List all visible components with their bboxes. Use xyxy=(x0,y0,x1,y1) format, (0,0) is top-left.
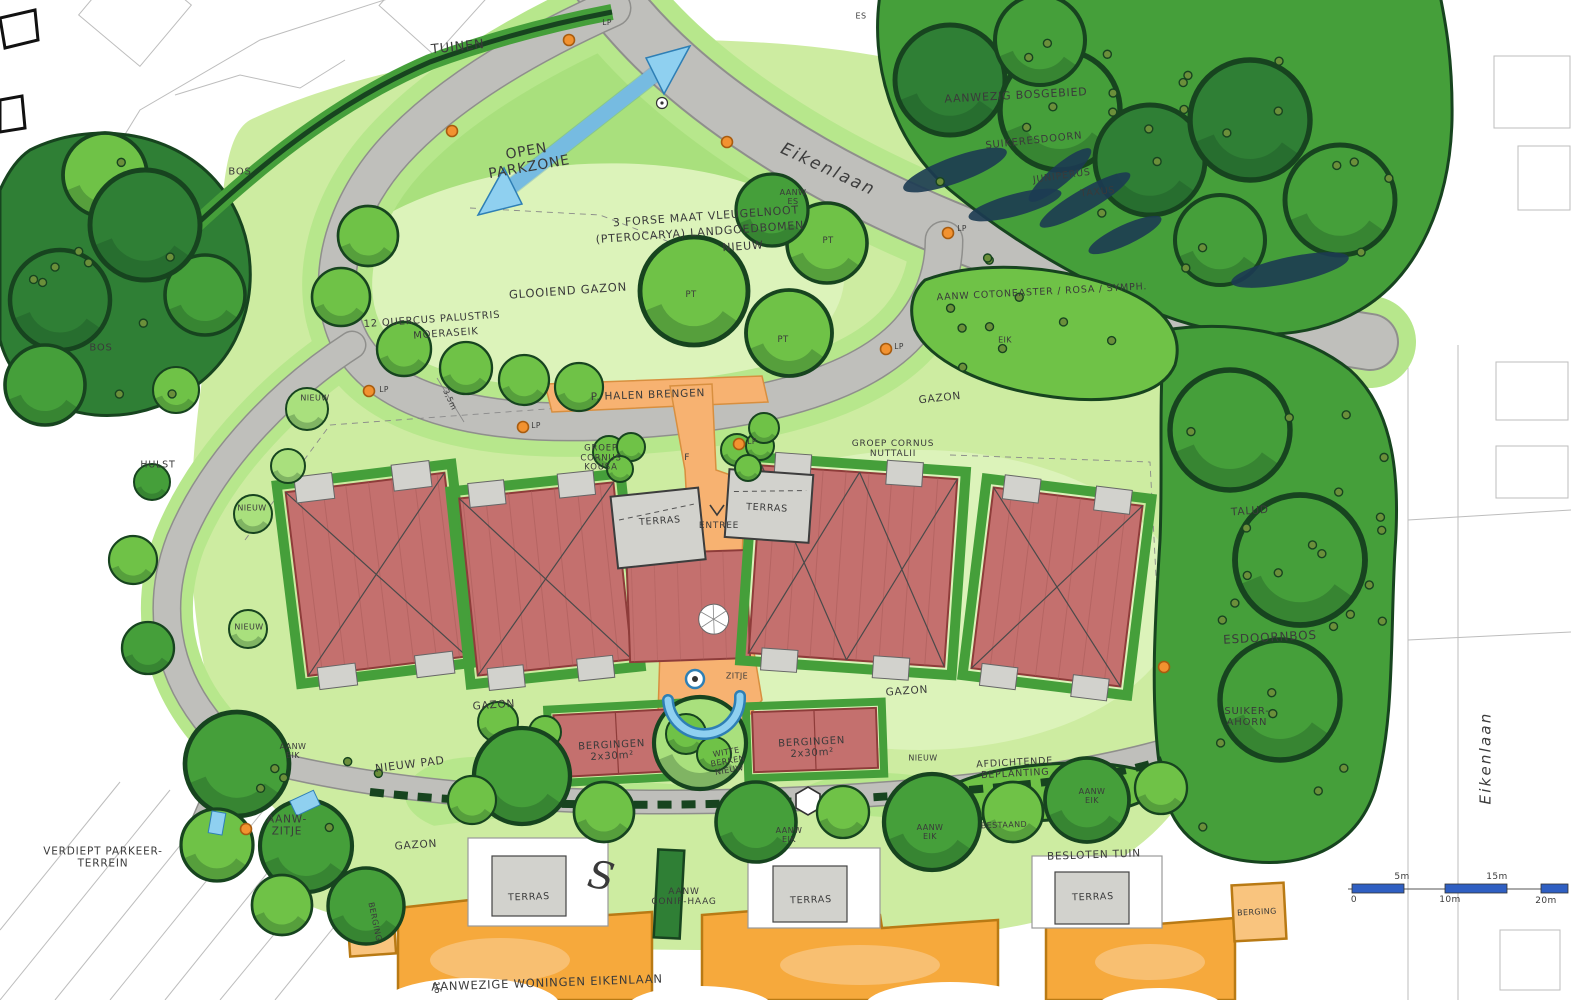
trunk-dot xyxy=(1184,71,1192,79)
wing-middle xyxy=(626,550,750,662)
trunk-dot xyxy=(1380,453,1388,461)
trunk-dot xyxy=(1376,513,1384,521)
trunk-dot xyxy=(168,390,176,398)
trunk-dot xyxy=(1109,108,1117,116)
conif-haag xyxy=(654,849,685,938)
trunk-dot xyxy=(1335,488,1343,496)
trunk-dot xyxy=(1103,50,1111,58)
trunk-dot xyxy=(1308,541,1316,549)
lamp-post xyxy=(447,126,458,137)
trunk-dot xyxy=(39,278,47,286)
lamp-post xyxy=(364,386,375,397)
trunk-dot xyxy=(1269,710,1277,718)
plan-drawing xyxy=(0,0,1571,1000)
trunk-dot xyxy=(1217,739,1225,747)
trunk-dot xyxy=(1350,158,1358,166)
trunk-dot xyxy=(257,784,265,792)
trunk-dot xyxy=(1333,161,1341,169)
lamp-post xyxy=(564,35,575,46)
trunk-dot xyxy=(1098,209,1106,217)
trunk-dot xyxy=(1108,337,1116,345)
trunk-dot xyxy=(1274,569,1282,577)
trunk-dot xyxy=(1043,39,1051,47)
trunk-dot xyxy=(936,178,944,186)
trunk-dot xyxy=(1357,248,1365,256)
trunk-dot xyxy=(1274,107,1282,115)
trunk-dot xyxy=(1346,610,1354,618)
survey-point-dot xyxy=(660,101,663,104)
scale-bar xyxy=(1348,884,1568,893)
berging-right xyxy=(1232,883,1287,942)
trunk-dot xyxy=(1365,581,1373,589)
trunk-dot xyxy=(280,774,288,782)
tree xyxy=(131,461,172,502)
trunk-dot xyxy=(1182,264,1190,272)
trunk-dot xyxy=(1023,123,1031,131)
black-building-corners xyxy=(0,10,38,132)
trunk-dot xyxy=(984,254,992,262)
trunk-dot xyxy=(75,247,83,255)
lamp-post xyxy=(943,228,954,239)
trunk-dot xyxy=(117,158,125,166)
trunk-dot xyxy=(30,275,38,283)
trunk-dot xyxy=(166,253,174,261)
trunk-dot xyxy=(1218,616,1226,624)
trunk-dot xyxy=(1318,550,1326,558)
trunk-dot xyxy=(1342,411,1350,419)
trunk-dot xyxy=(1242,524,1250,532)
trunk-dot xyxy=(1340,764,1348,772)
trunk-dot xyxy=(1179,79,1187,87)
site-plan-canvas: TUINENOPEN PARKZONEEikenlaanEikenlaanAAN… xyxy=(0,0,1571,1000)
trunk-dot xyxy=(1378,526,1386,534)
trunk-dot xyxy=(1243,571,1251,579)
lamp-post xyxy=(734,439,745,450)
lamp-post xyxy=(241,824,252,835)
trunk-dot xyxy=(1153,158,1161,166)
trunk-dot xyxy=(1109,89,1117,97)
trunk-dot xyxy=(1385,174,1393,182)
trunk-dot xyxy=(1145,125,1153,133)
trunk-dot xyxy=(947,304,955,312)
trunk-dot xyxy=(1187,428,1195,436)
lamp-post xyxy=(722,137,733,148)
trunk-dot xyxy=(1059,318,1067,326)
trunk-dot xyxy=(325,823,333,831)
trunk-dot xyxy=(986,323,994,331)
trunk-dot xyxy=(139,319,147,327)
trunk-dot xyxy=(1049,103,1057,111)
trunk-dot xyxy=(1180,105,1188,113)
trunk-dot xyxy=(85,259,93,267)
trunk-dot xyxy=(1314,787,1322,795)
trunk-dot xyxy=(271,765,279,773)
lamp-post xyxy=(1159,662,1170,673)
trunk-dot xyxy=(1015,293,1023,301)
trunk-dot xyxy=(1285,414,1293,422)
trunk-dot xyxy=(374,769,382,777)
trunk-dot xyxy=(115,390,123,398)
trunk-dot xyxy=(344,758,352,766)
trunk-dot xyxy=(1275,57,1283,65)
trunk-dot xyxy=(1378,617,1386,625)
trunk-dot xyxy=(959,363,967,371)
trunk-dot xyxy=(1199,823,1207,831)
lamp-post xyxy=(518,422,529,433)
trunk-dot xyxy=(1199,244,1207,252)
trunk-dot xyxy=(1330,622,1338,630)
trunk-dot xyxy=(1025,53,1033,61)
trunk-dot xyxy=(999,345,1007,353)
trunk-dot xyxy=(958,324,966,332)
trunk-dot xyxy=(1231,599,1239,607)
trunk-dot xyxy=(51,263,59,271)
trunk-dot xyxy=(1268,689,1276,697)
trunk-dot xyxy=(1223,129,1231,137)
lamp-post xyxy=(881,344,892,355)
